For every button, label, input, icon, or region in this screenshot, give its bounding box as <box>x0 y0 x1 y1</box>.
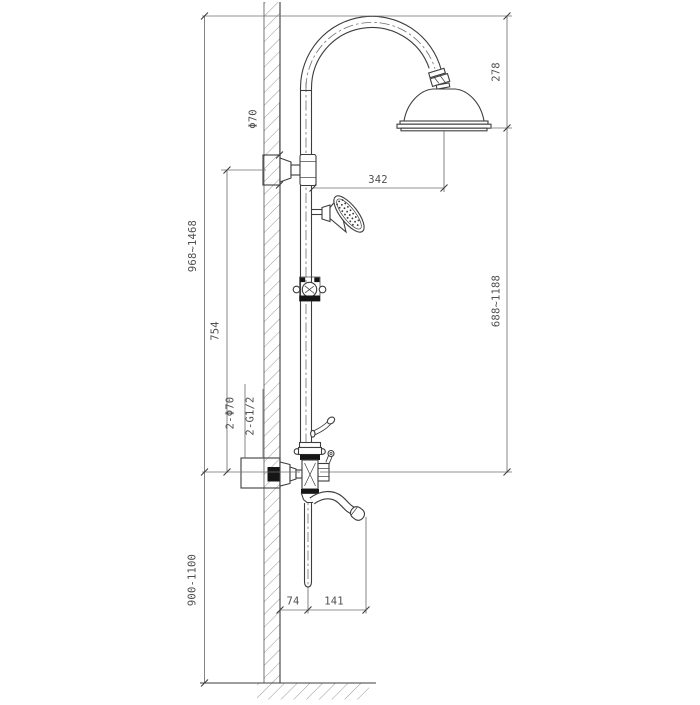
wall-section <box>264 2 280 683</box>
tub-spout <box>312 495 367 522</box>
wall-hatch <box>264 2 280 683</box>
union-nut <box>299 448 322 455</box>
gooseneck-arc <box>300 16 441 88</box>
shower-head-dome <box>404 89 484 121</box>
inlet-escutcheons-label: 2-Φ70 <box>225 397 237 430</box>
bracket-stem <box>291 165 300 175</box>
dim-column-height-label: 968~1468 <box>187 220 199 272</box>
hand-shower-socket <box>322 205 330 222</box>
slider-wing-right <box>319 286 326 293</box>
flange-dia-label: Φ70 <box>248 109 260 129</box>
dim-74-label: 74 <box>286 596 299 608</box>
hand-shower <box>312 191 369 236</box>
inlet-escutcheon <box>280 462 290 486</box>
union-ring <box>300 443 321 448</box>
gooseneck-inner <box>312 28 430 88</box>
slider-clamp <box>293 277 326 301</box>
floor <box>200 683 376 700</box>
inlet-threads-label: 2-G1/2 <box>245 396 257 435</box>
dim-141-label: 141 <box>324 596 344 608</box>
bracket-cone <box>280 158 291 182</box>
dim-278-label: 278 <box>491 62 503 82</box>
dim-900-1100-label: 900-1100 <box>187 554 199 606</box>
diverter-knob <box>328 451 334 457</box>
dimension-labels: 968~1468 754 900-1100 278 688~1188 Φ70 2… <box>187 62 503 607</box>
dim-342-label: 342 <box>368 174 388 186</box>
installation-drawing: 968~1468 754 900-1100 278 688~1188 Φ70 2… <box>0 0 700 700</box>
floor-hatch <box>257 684 369 700</box>
drawing-canvas: 968~1468 754 900-1100 278 688~1188 Φ70 2… <box>0 0 700 700</box>
shower-head <box>397 89 491 131</box>
arc-centerline <box>306 22 435 88</box>
bracket-sleeve <box>300 155 316 186</box>
dim-754-label: 754 <box>210 321 222 341</box>
slider-wing-left <box>293 286 300 293</box>
head-swivel-connector <box>429 68 450 89</box>
wall-inlet <box>268 467 281 482</box>
dim-688-1188-label: 688~1188 <box>491 275 503 327</box>
